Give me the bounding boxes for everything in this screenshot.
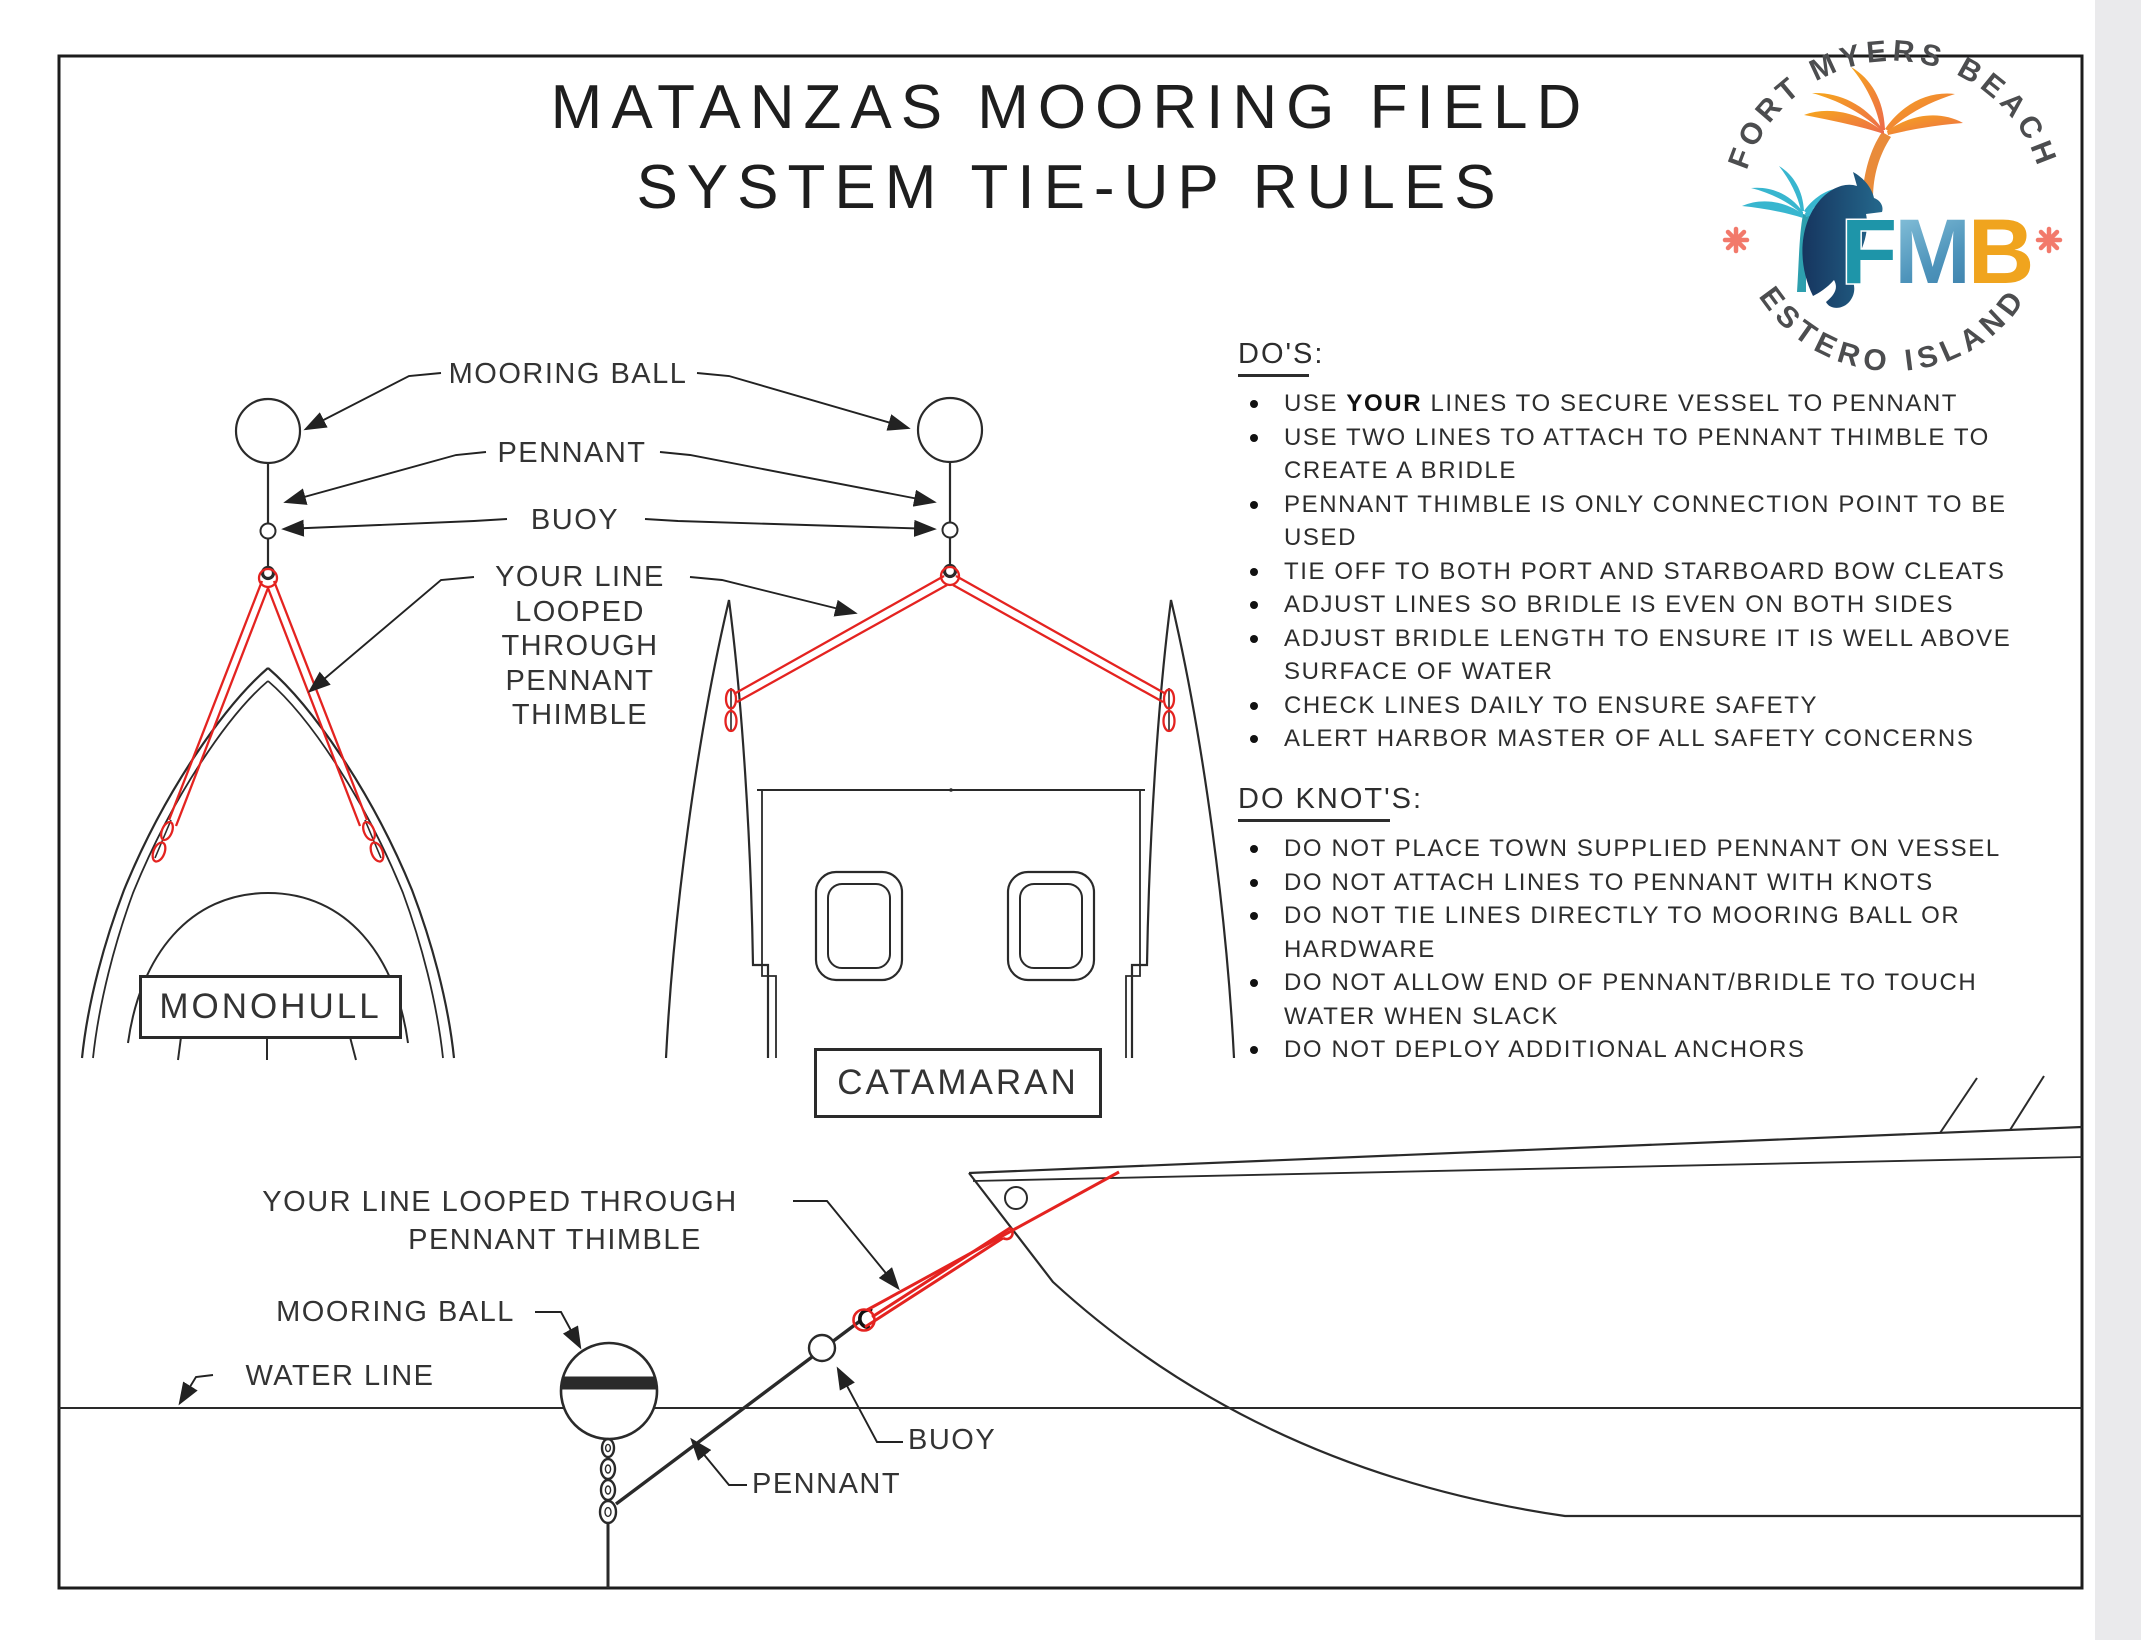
monohull-mooring-ball: [236, 399, 300, 463]
vessel-hull: [969, 1173, 2082, 1516]
do-knots-heading: DO KNOT'S:: [1238, 783, 1423, 816]
rule-item: USE TWO LINES TO ATTACH TO PENNANT THIMB…: [1238, 421, 2098, 488]
vessel-deck-line: [969, 1127, 2082, 1173]
mooring-chain: [600, 1439, 616, 1523]
rule-item: PENNANT THIMBLE IS ONLY CONNECTION POINT…: [1238, 488, 2098, 555]
label-pennant-bottom: PENNANT: [752, 1468, 932, 1501]
monohull-buoy: [261, 524, 276, 539]
rule-item: TIE OFF TO BOTH PORT AND STARBOARD BOW C…: [1238, 555, 2098, 589]
label-water-line: WATER LINE: [230, 1360, 450, 1393]
mooring-ball-leader-left: [306, 373, 441, 429]
rule-item: DO NOT ATTACH LINES TO PENNANT WITH KNOT…: [1238, 866, 2098, 900]
deck-stanchion: [2010, 1076, 2044, 1130]
catamaran-mooring-ball: [918, 398, 982, 462]
label-mooring-ball-bottom: MOORING BALL: [258, 1296, 533, 1329]
mooring-ball-leader-right: [697, 373, 908, 428]
rule-item: CHECK LINES DAILY TO ENSURE SAFETY: [1238, 689, 2098, 723]
catamaran-diagram: [666, 398, 1234, 1058]
rule-item: DO NOT ALLOW END OF PENNANT/BRIDLE TO TO…: [1238, 966, 2098, 1033]
starburst-icon: [2038, 229, 2060, 251]
monohull-name: MONOHULL: [159, 987, 381, 1027]
mooring-rules-page: FORT MYERS BEACH ESTERO ISLAND: [0, 0, 2141, 1640]
scan-edge: [2095, 0, 2141, 1640]
label-your-line-bottom-2: PENNANT THIMBLE: [210, 1224, 900, 1257]
page-title-line2: SYSTEM TIE-UP RULES: [59, 152, 2082, 223]
deck-stanchion: [1940, 1078, 1977, 1133]
label-buoy-bottom: BUOY: [908, 1424, 1048, 1457]
rule-item: USE YOUR LINES TO SECURE VESSEL TO PENNA…: [1238, 387, 2098, 421]
water-line-leader: [180, 1375, 213, 1403]
rule-item: DO NOT DEPLOY ADDITIONAL ANCHORS: [1238, 1033, 2098, 1067]
rule-item: DO NOT PLACE TOWN SUPPLIED PENNANT ON VE…: [1238, 832, 2098, 866]
label-your-line-bottom-1: YOUR LINE LOOPED THROUGH: [210, 1186, 790, 1219]
label-mooring-ball: MOORING BALL: [428, 358, 708, 391]
dos-list: USE YOUR LINES TO SECURE VESSEL TO PENNA…: [1238, 387, 2098, 756]
vessel-hawse-hole: [1005, 1187, 1027, 1209]
rule-item: ADJUST BRIDLE LENGTH TO ENSURE IT IS WEL…: [1238, 622, 2098, 689]
rule-item: DO NOT TIE LINES DIRECTLY TO MOORING BAL…: [1238, 899, 2098, 966]
starburst-icon: [1725, 229, 1747, 251]
dos-list-section: DO'S: USE YOUR LINES TO SECURE VESSEL TO…: [1238, 338, 2098, 756]
catamaran-buoy: [943, 523, 958, 538]
mooring-ball-bottom-leader: [535, 1312, 580, 1347]
catamaran-name-box: CATAMARAN: [814, 1048, 1102, 1118]
buoy-bottom-leader: [838, 1369, 903, 1442]
side-buoy: [809, 1335, 835, 1361]
pennant-bottom-leader: [692, 1440, 747, 1485]
page-title-line1: MATANZAS MOORING FIELD: [59, 72, 2082, 143]
label-your-line: YOUR LINELOOPEDTHROUGHPENNANTTHIMBLE: [440, 560, 720, 733]
rule-item: ALERT HARBOR MASTER OF ALL SAFETY CONCER…: [1238, 722, 2098, 756]
label-pennant: PENNANT: [432, 437, 712, 470]
rule-item: ADJUST LINES SO BRIDLE IS EVEN ON BOTH S…: [1238, 588, 2098, 622]
catamaran-bridle-lines: [726, 567, 1175, 731]
do-knots-list-section: DO KNOT'S: DO NOT PLACE TOWN SUPPLIED PE…: [1238, 783, 2098, 1067]
monohull-name-box: MONOHULL: [139, 975, 402, 1039]
dos-heading: DO'S:: [1238, 338, 1324, 371]
monohull-diagram: [82, 399, 454, 1060]
side-view-diagram: [59, 1076, 2082, 1588]
side-mooring-ball: [561, 1343, 657, 1439]
monohull-bridle-lines: [150, 569, 386, 863]
label-buoy: BUOY: [435, 504, 715, 537]
catamaran-name: CATAMARAN: [837, 1063, 1079, 1103]
do-knots-list: DO NOT PLACE TOWN SUPPLIED PENNANT ON VE…: [1238, 832, 2098, 1067]
